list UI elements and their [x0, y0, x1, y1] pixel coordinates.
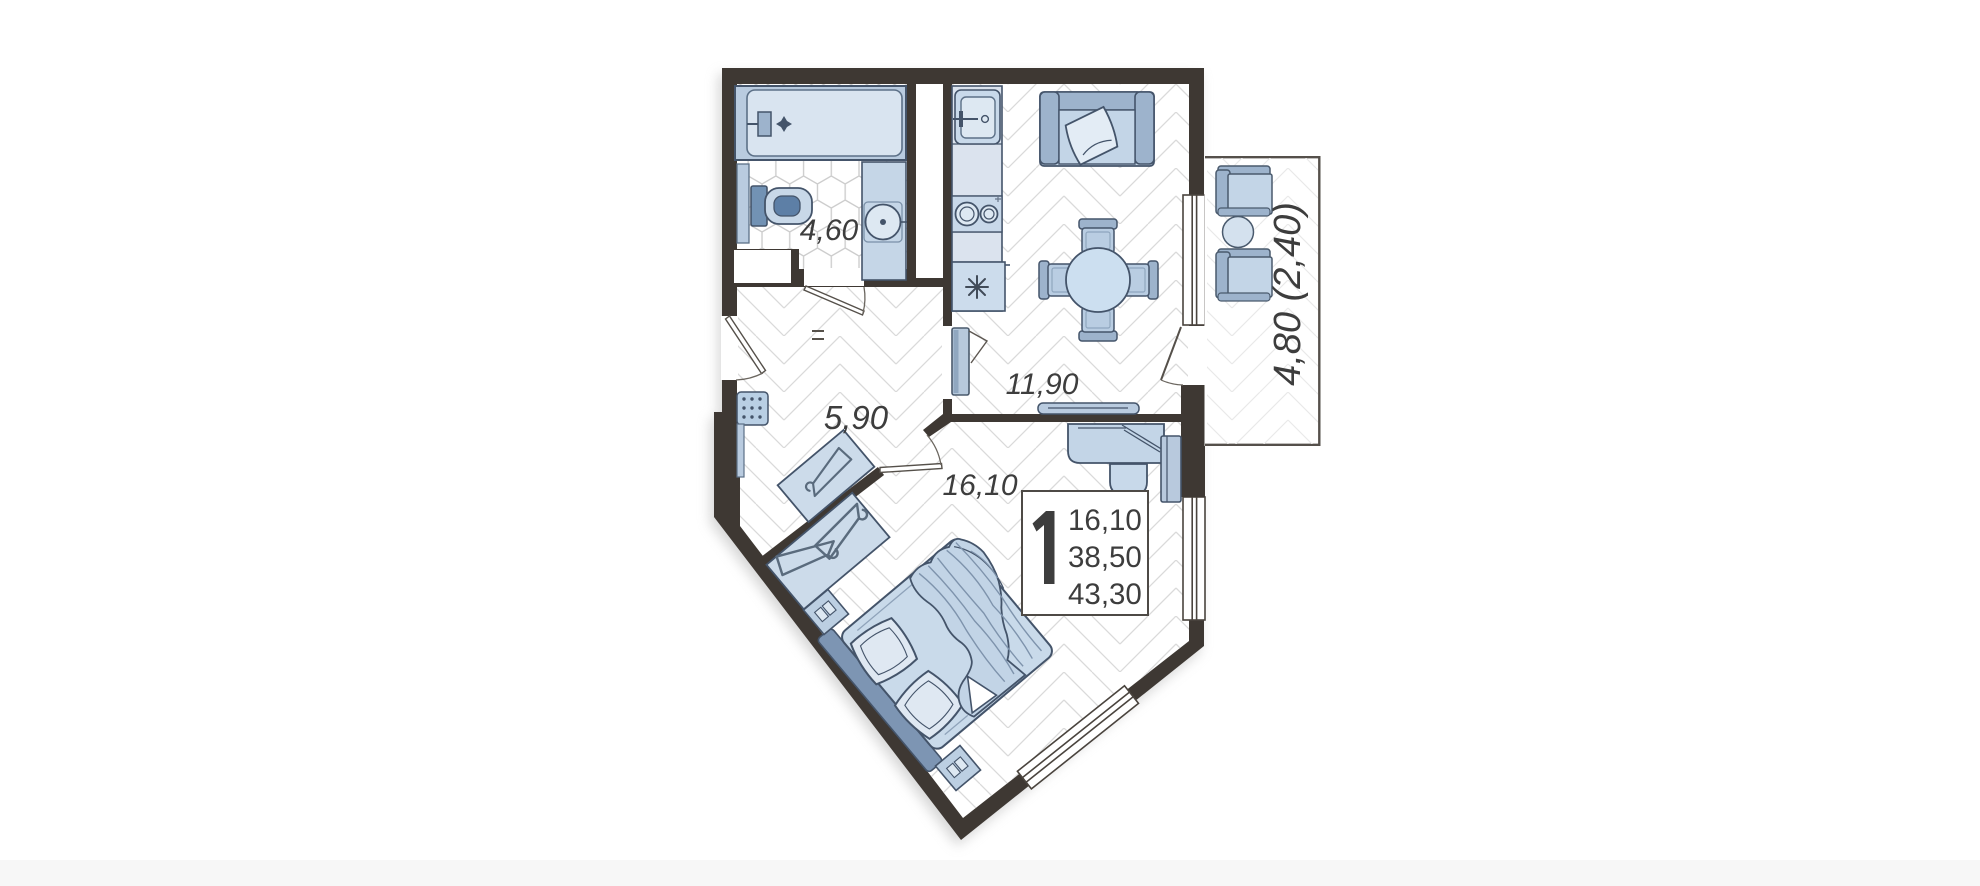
svg-text:11,90: 11,90	[1006, 368, 1079, 401]
svg-text:38,50: 38,50	[1068, 541, 1142, 574]
svg-text:43,30: 43,30	[1068, 578, 1142, 611]
svg-text:4,80 (2,40): 4,80 (2,40)	[1267, 202, 1309, 386]
svg-text:16,10: 16,10	[1068, 504, 1142, 537]
svg-text:16,10: 16,10	[942, 469, 1017, 502]
svg-text:4,60: 4,60	[800, 214, 859, 247]
svg-text:5,90: 5,90	[824, 399, 889, 436]
